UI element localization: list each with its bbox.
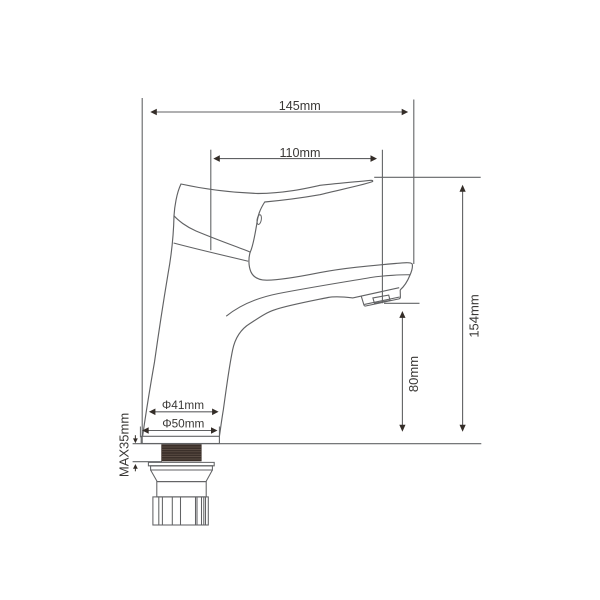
svg-text:145mm: 145mm (279, 99, 321, 113)
svg-text:110mm: 110mm (279, 146, 320, 160)
svg-text:154mm: 154mm (466, 294, 481, 337)
svg-text:Φ41mm: Φ41mm (162, 398, 204, 412)
svg-text:MAX35mm: MAX35mm (116, 413, 131, 477)
svg-text:80mm: 80mm (406, 356, 421, 392)
svg-text:Φ50mm: Φ50mm (162, 417, 204, 431)
